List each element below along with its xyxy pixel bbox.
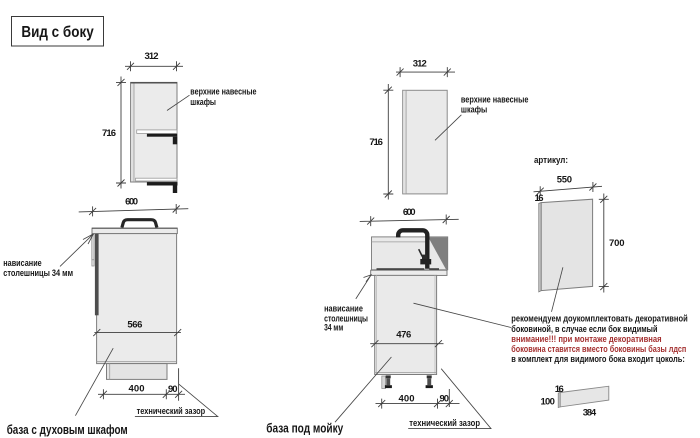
svg-text:столешницы 34 мм: столешницы 34 мм <box>3 268 73 279</box>
svg-text:база под мойку: база под мойку <box>266 421 344 436</box>
svg-text:шкафы: шкафы <box>461 105 487 116</box>
svg-text:312: 312 <box>145 51 159 62</box>
svg-text:Вид с боку: Вид с боку <box>21 24 93 41</box>
svg-text:550: 550 <box>557 174 572 185</box>
svg-text:400: 400 <box>129 384 145 395</box>
svg-text:100: 100 <box>541 397 555 408</box>
svg-text:в комплект для видимого бока в: в комплект для видимого бока входит цоко… <box>511 354 685 365</box>
svg-text:90: 90 <box>440 394 450 405</box>
svg-text:артикул:: артикул: <box>534 155 568 166</box>
svg-text:600: 600 <box>403 207 416 218</box>
svg-text:верхние навесные: верхние навесные <box>190 86 256 97</box>
svg-text:технический зазор: технический зазор <box>409 418 480 429</box>
svg-text:716: 716 <box>369 137 383 148</box>
svg-text:476: 476 <box>396 330 411 341</box>
svg-text:34 мм: 34 мм <box>324 322 343 333</box>
svg-text:400: 400 <box>399 393 415 404</box>
svg-text:база с духовым шкафом: база с духовым шкафом <box>7 422 128 437</box>
svg-text:384: 384 <box>583 408 597 419</box>
svg-text:16: 16 <box>555 384 564 395</box>
svg-text:90: 90 <box>168 384 178 395</box>
svg-text:566: 566 <box>127 320 142 331</box>
svg-text:700: 700 <box>609 238 625 249</box>
svg-text:312: 312 <box>413 59 427 70</box>
svg-text:600: 600 <box>125 197 138 208</box>
svg-text:технический зазор: технический зазор <box>137 406 206 417</box>
svg-text:шкафы: шкафы <box>190 97 216 108</box>
svg-text:716: 716 <box>102 128 116 139</box>
